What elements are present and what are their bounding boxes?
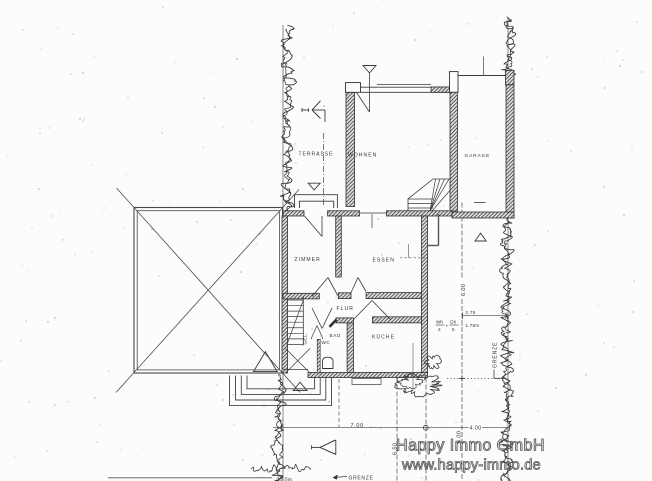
svg-text:1.75m: 1.75m	[466, 323, 480, 328]
svg-text:Happy Immo GmbH: Happy Immo GmbH	[396, 437, 545, 455]
svg-text:2.75: 2.75	[466, 310, 476, 315]
svg-text:TERRASSE: TERRASSE	[299, 152, 334, 158]
svg-text:GARAGE: GARAGE	[465, 153, 491, 158]
svg-text:7.00: 7.00	[351, 423, 364, 429]
svg-text:2: 2	[438, 327, 441, 332]
svg-text:4.00: 4.00	[470, 426, 482, 432]
svg-text:WC: WC	[322, 340, 331, 345]
svg-text:FLUR: FLUR	[337, 306, 354, 312]
svg-text:ZIMMER: ZIMMER	[295, 257, 321, 263]
svg-text:Wh: Wh	[436, 320, 443, 325]
svg-text:KÜCHE: KÜCHE	[372, 334, 395, 341]
svg-text:+: +	[446, 325, 449, 330]
svg-text:GRENZE: GRENZE	[493, 342, 499, 368]
svg-text:BAD: BAD	[330, 333, 342, 338]
svg-text:6: 6	[452, 327, 455, 332]
svg-text:6.00: 6.00	[461, 284, 467, 296]
svg-text:GRENZE: GRENZE	[349, 476, 374, 481]
svg-text:www.happy-immo.de: www.happy-immo.de	[401, 458, 541, 474]
svg-text:ESSEN: ESSEN	[373, 258, 395, 264]
svg-text:GEL.: GEL.	[303, 333, 308, 345]
svg-text:WOHNEN: WOHNEN	[348, 153, 377, 159]
svg-text:Gh: Gh	[450, 320, 457, 325]
svg-text:20.0m: 20.0m	[277, 478, 293, 481]
